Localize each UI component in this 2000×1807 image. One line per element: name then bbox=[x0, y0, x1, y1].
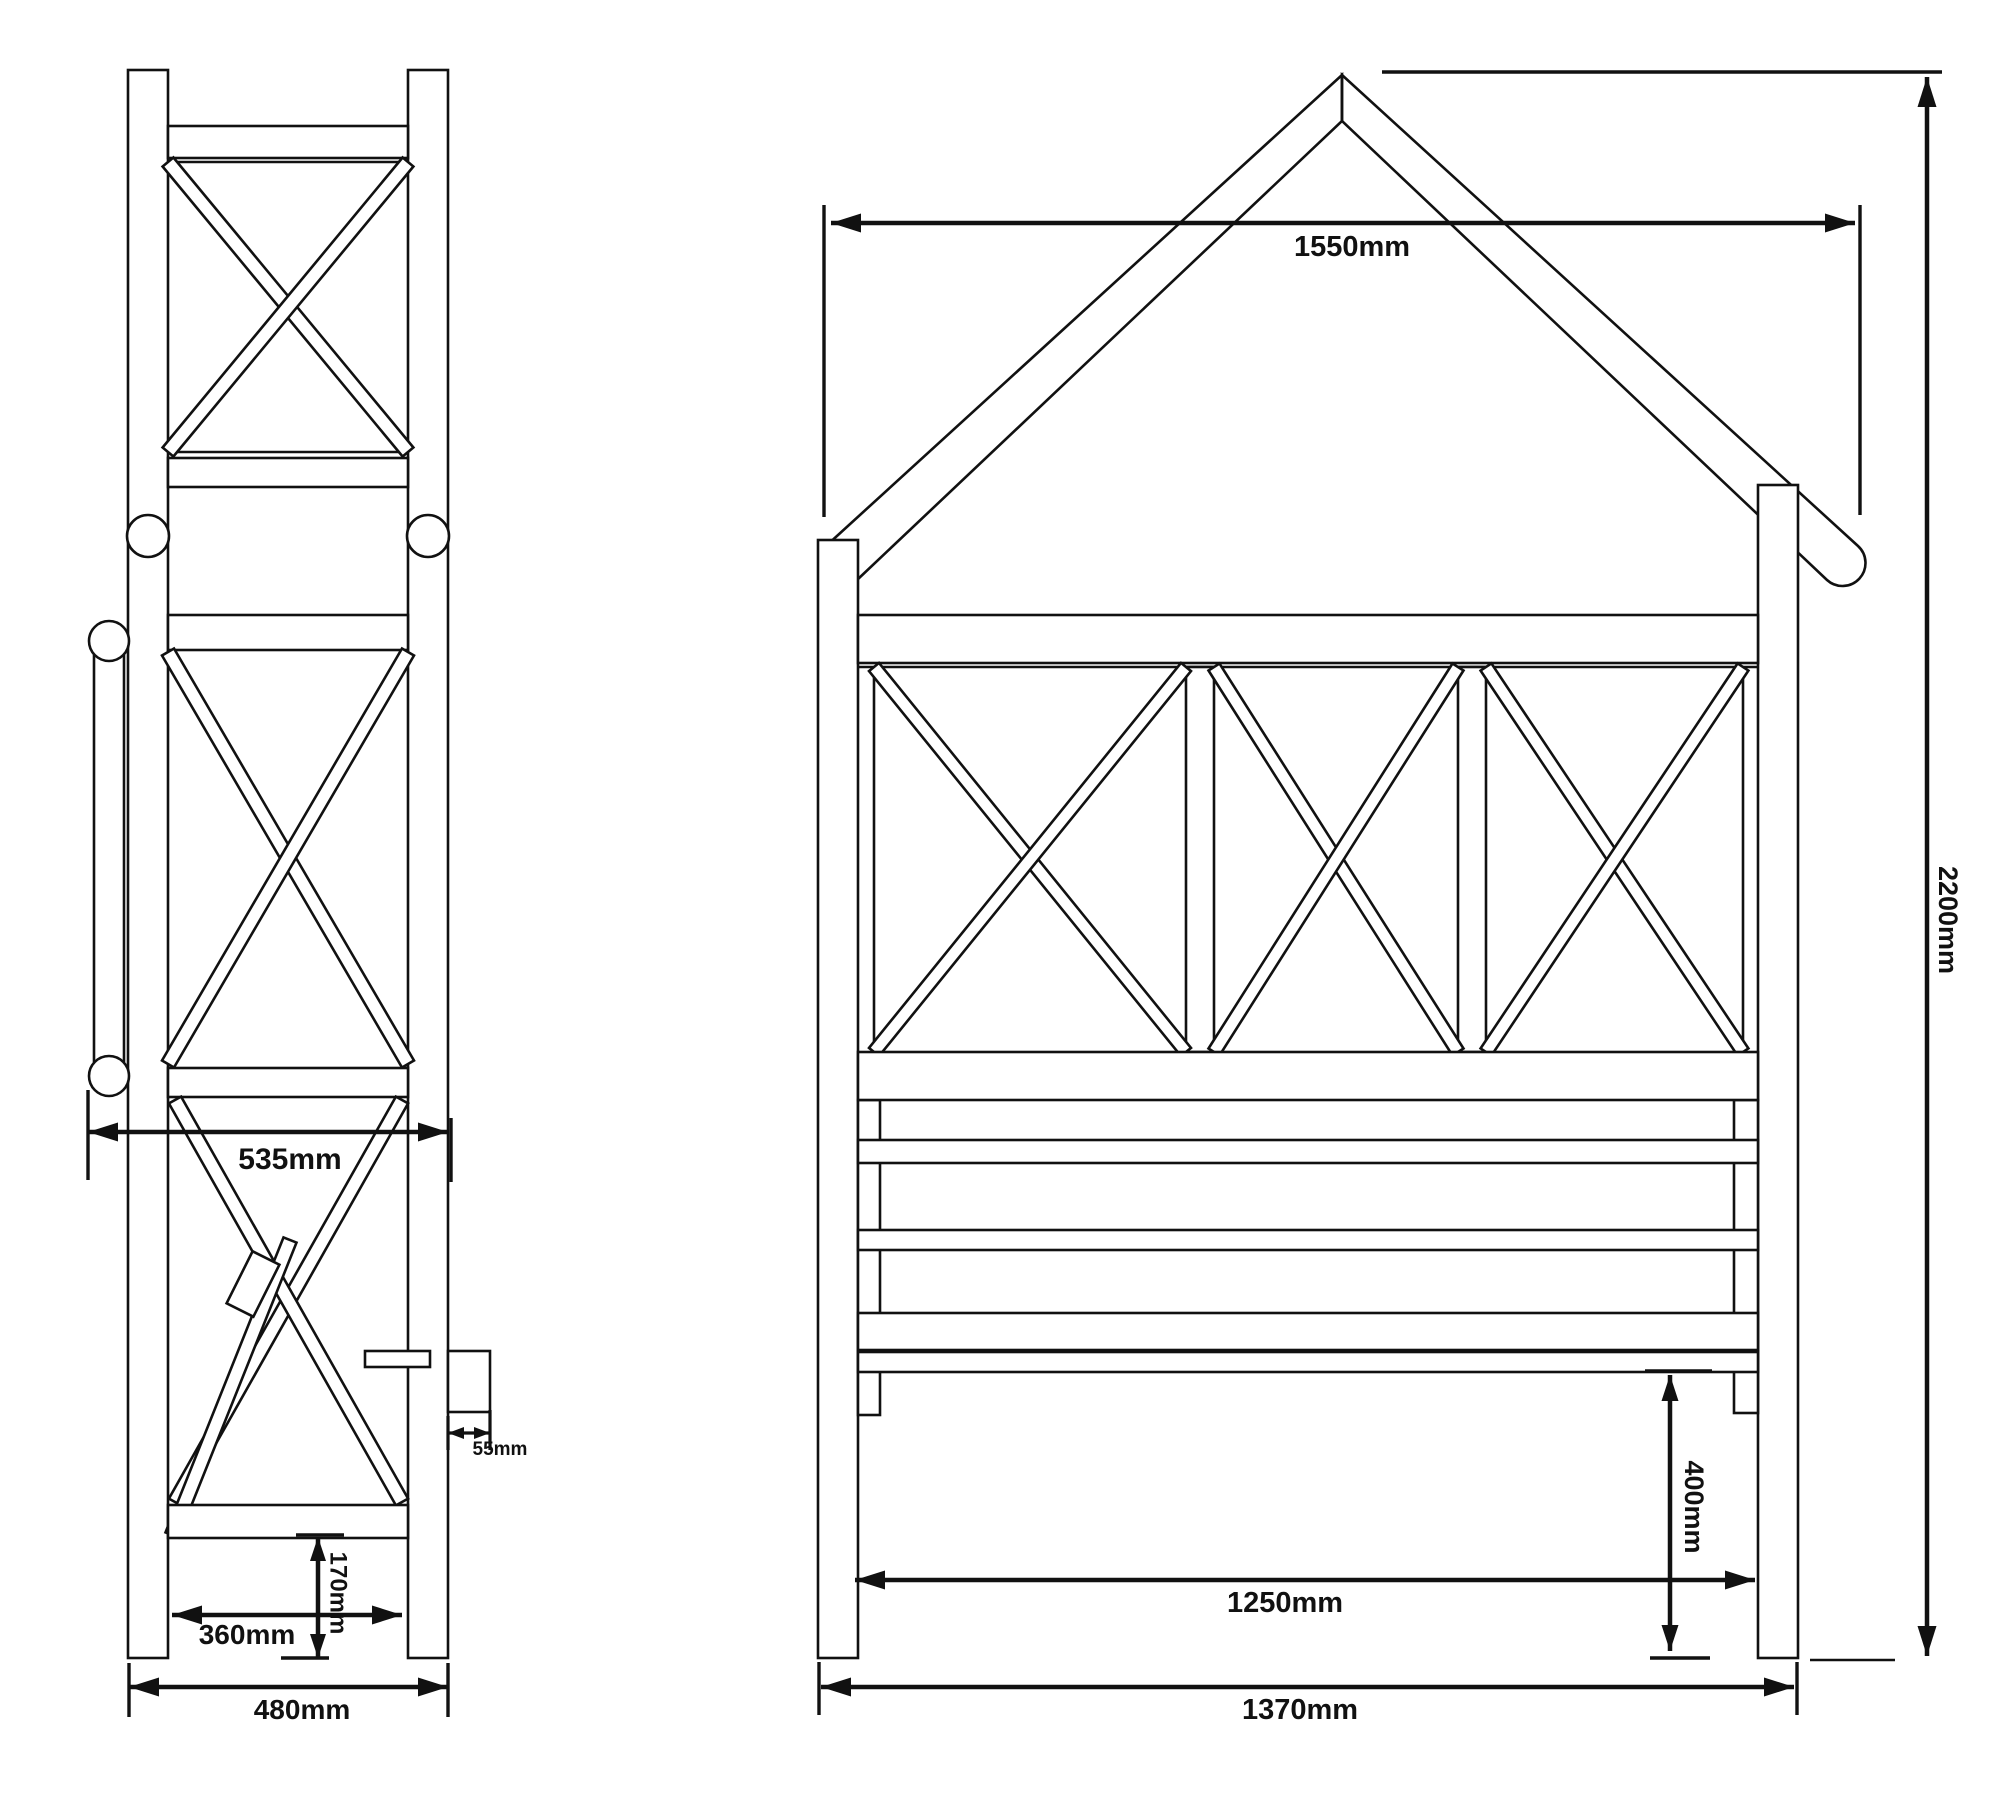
dim-1370mm-arrow-1 bbox=[1764, 1678, 1794, 1697]
side-rear-protrusion bbox=[448, 1351, 490, 1412]
side-armrest-bar bbox=[94, 641, 124, 1076]
dim-480mm-arrow-1 bbox=[418, 1678, 448, 1697]
side-top-rail bbox=[168, 126, 408, 158]
side-rail-b bbox=[168, 615, 408, 650]
side-post-left bbox=[128, 70, 168, 1658]
side-underseat-brace-steep bbox=[166, 1237, 297, 1537]
dim-55mm-arrow-1 bbox=[474, 1427, 490, 1439]
dim-400mm-label: 400mm bbox=[1679, 1460, 1709, 1553]
side-seat-rail bbox=[168, 1068, 408, 1097]
side-peg-left bbox=[127, 515, 169, 557]
front-header-rail bbox=[858, 615, 1758, 663]
front-post-left bbox=[818, 540, 858, 1658]
dim-170mm-arrow-1 bbox=[310, 1634, 326, 1658]
dim-535mm-label: 535mm bbox=[238, 1143, 341, 1176]
dim-55mm-arrow-0 bbox=[448, 1427, 464, 1439]
side-seat-slat-piece-b bbox=[365, 1351, 430, 1367]
front-roof-bargeboard-left bbox=[818, 75, 1342, 586]
dim-400mm-arrow-0 bbox=[1662, 1375, 1679, 1401]
front-lattice-divider-2 bbox=[1458, 667, 1486, 1052]
side-peg-right bbox=[407, 515, 449, 557]
dim-170mm-label: 170mm bbox=[325, 1552, 352, 1635]
side-bottom-rail bbox=[168, 1505, 408, 1538]
dim-480mm-label: 480mm bbox=[254, 1694, 351, 1725]
dim-55mm-label: 55mm bbox=[473, 1439, 528, 1460]
side-armrest-knob-bottom bbox=[89, 1056, 129, 1096]
side-rail-a bbox=[168, 458, 408, 487]
front-lattice-divider-1 bbox=[1186, 667, 1214, 1052]
dim-2200mm-arrow-0 bbox=[1918, 77, 1937, 107]
dim-1370mm-arrow-0 bbox=[821, 1678, 851, 1697]
dim-1550mm-arrow-1 bbox=[1825, 214, 1855, 233]
side-post-right bbox=[408, 70, 448, 1658]
side-armrest-knob-top bbox=[89, 621, 129, 661]
dim-480mm-arrow-0 bbox=[129, 1678, 159, 1697]
front-back-slat-1 bbox=[858, 1140, 1758, 1163]
dim-1550mm-arrow-0 bbox=[831, 214, 861, 233]
dim-1370mm-label: 1370mm bbox=[1242, 1694, 1358, 1726]
dim-360mm-label: 360mm bbox=[199, 1619, 296, 1650]
dim-400mm-arrow-1 bbox=[1662, 1625, 1679, 1651]
dim-1250mm-label: 1250mm bbox=[1227, 1587, 1343, 1619]
front-back-slat-2 bbox=[858, 1230, 1758, 1250]
front-post-right bbox=[1758, 485, 1798, 1658]
front-seat-slat-band bbox=[858, 1313, 1758, 1350]
front-backrest-top-rail bbox=[858, 1052, 1758, 1100]
dim-1550mm-label: 1550mm bbox=[1294, 231, 1410, 263]
dim-360mm-arrow-0 bbox=[172, 1606, 202, 1625]
dim-1250mm-arrow-1 bbox=[1725, 1571, 1755, 1590]
dim-360mm-arrow-1 bbox=[372, 1606, 402, 1625]
dim-170mm-arrow-0 bbox=[310, 1537, 326, 1561]
dim-2200mm-label: 2200mm bbox=[1933, 866, 1963, 974]
dim-1250mm-arrow-0 bbox=[855, 1571, 885, 1590]
blueprint-canvas: 535mm55mm170mm360mm480mm1550mm2200mm400m… bbox=[0, 0, 2000, 1807]
technical-drawing: 535mm55mm170mm360mm480mm1550mm2200mm400m… bbox=[0, 0, 2000, 1807]
front-seat-front-rail bbox=[858, 1352, 1758, 1372]
dim-535mm-arrow-0 bbox=[88, 1123, 118, 1142]
dim-2200mm-arrow-1 bbox=[1918, 1626, 1937, 1656]
